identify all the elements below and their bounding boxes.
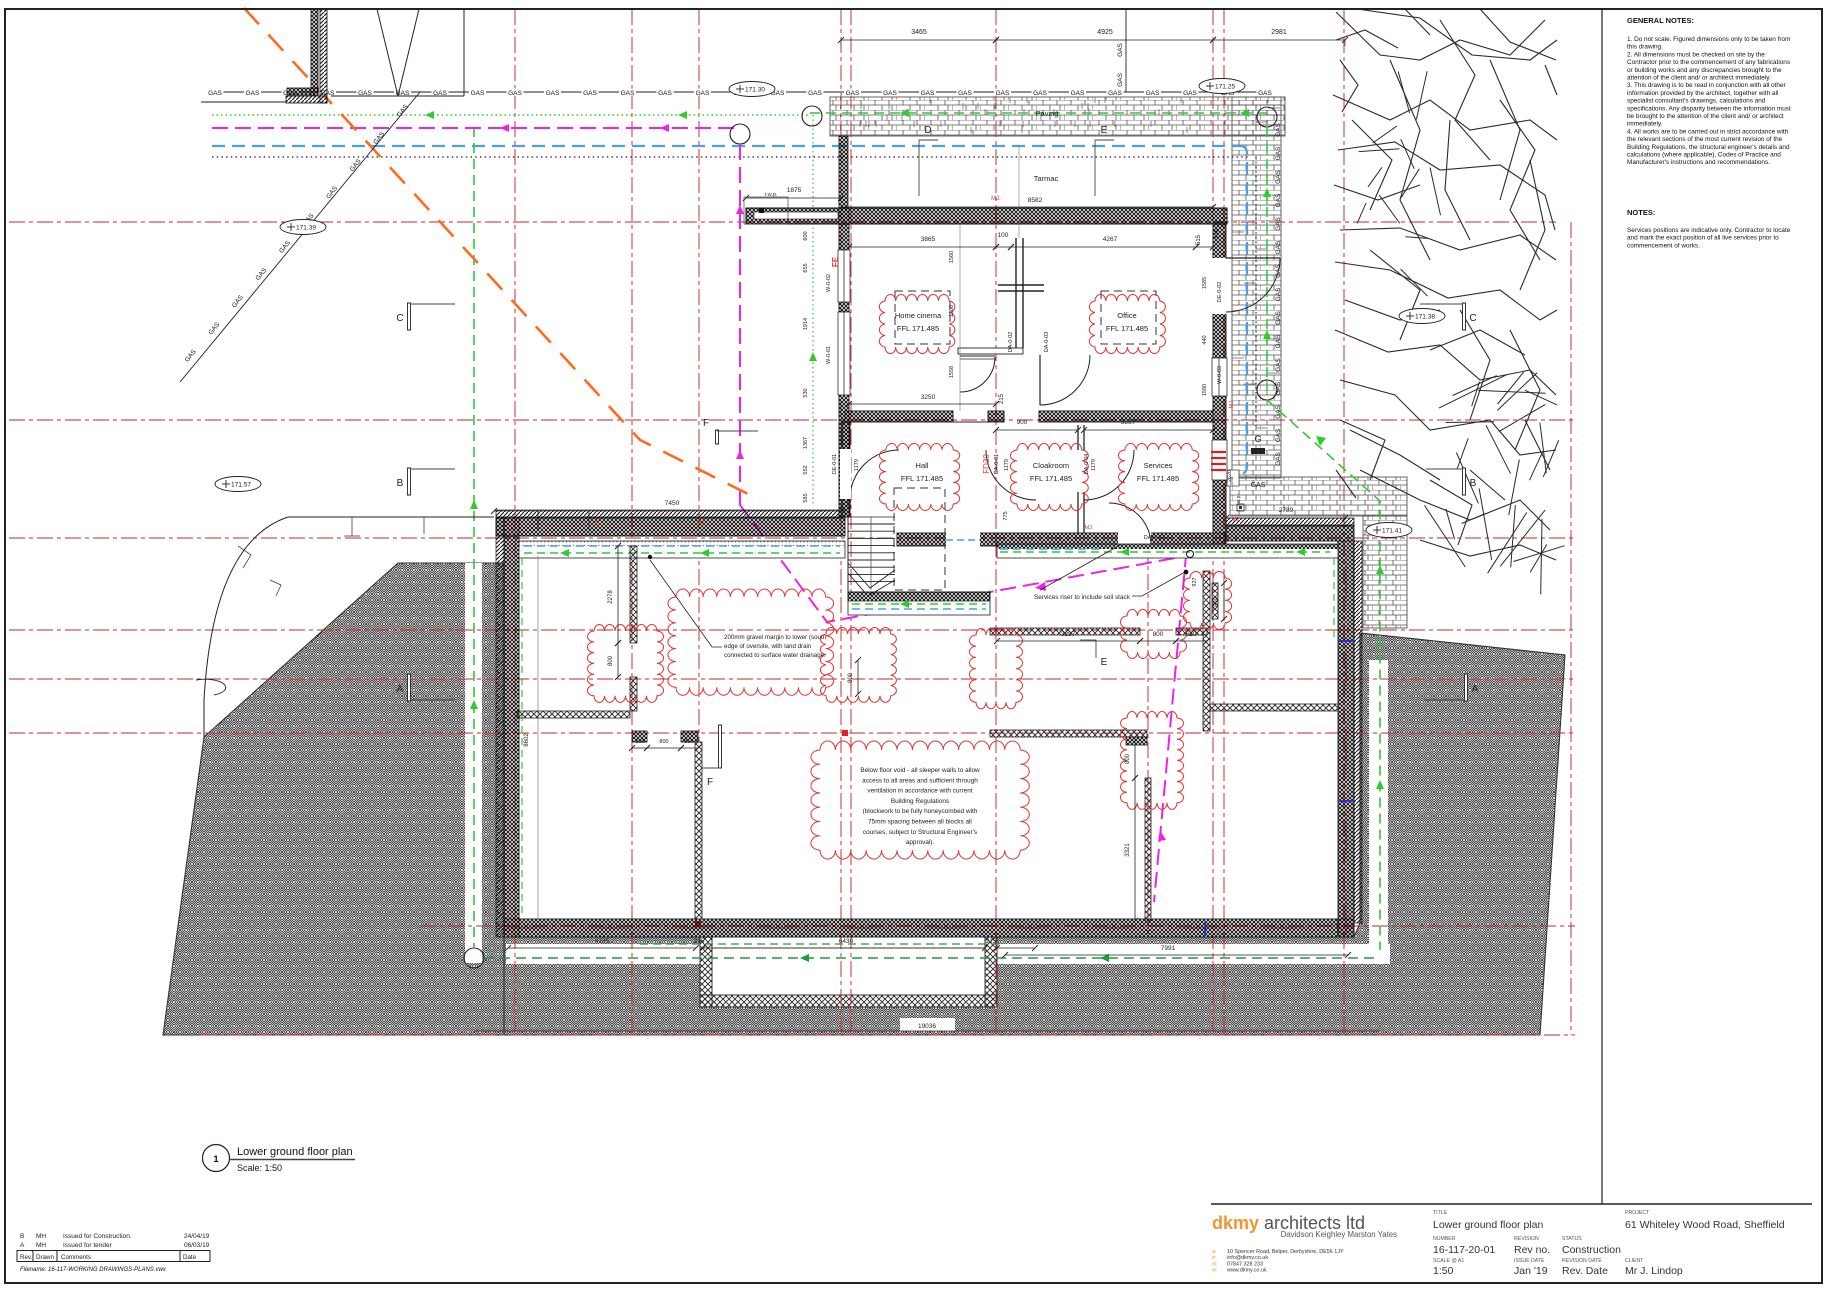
svg-text:(blockwork to be fully honeyco: (blockwork to be fully honeycombed with [863,808,978,815]
svg-text:FFL 171.485: FFL 171.485 [901,474,943,483]
svg-text:TITLE: TITLE [1433,1210,1448,1216]
svg-text:GAS: GAS [1108,90,1122,97]
svg-text:Lower ground floor plan: Lower ground floor plan [1433,1219,1543,1231]
svg-text:info@dkmy.co.uk: info@dkmy.co.uk [1227,1255,1268,1261]
svg-text:171.41: 171.41 [1382,528,1402,535]
svg-text:16-117-WORKING DRAWINGS-PLANS.: 16-117-WORKING DRAWINGS-PLANS.vwx [48,1267,167,1273]
svg-text:Filename:: Filename: [20,1267,47,1273]
svg-text:1179: 1179 [1091,459,1097,471]
svg-text:171.57: 171.57 [231,482,251,489]
svg-text:Building Regulations, the stru: Building Regulations, the structural eng… [1627,144,1790,151]
svg-text:215: 215 [986,938,997,945]
svg-text:1585: 1585 [1202,277,1208,289]
svg-text:Rev. Date: Rev. Date [1562,1265,1608,1277]
svg-text:C: C [1469,313,1476,324]
svg-text:1580: 1580 [1202,384,1208,396]
svg-text:2789: 2789 [1279,507,1294,514]
svg-text:1: 1 [213,1154,219,1165]
svg-text:8602: 8602 [524,733,530,747]
svg-text:MJ.: MJ. [1085,525,1094,531]
svg-text:GAS: GAS [1275,122,1282,136]
svg-text:4267: 4267 [1103,236,1118,243]
svg-text:215: 215 [999,393,1005,404]
svg-text:Construction: Construction [1562,1244,1621,1256]
svg-text:Rev no.: Rev no. [1514,1244,1550,1256]
svg-text:515: 515 [1196,234,1202,245]
svg-text:1179: 1179 [854,459,860,471]
svg-text:W-0-02: W-0-02 [826,274,832,292]
svg-text:Contractor prior to the commen: Contractor prior to the commencement of … [1627,59,1790,66]
svg-text:Below floor void - all sleeper: Below floor void - all sleeper walls to … [860,767,980,774]
svg-text:STATUS: STATUS [1562,1236,1582,1242]
svg-text:MJ.: MJ. [1229,399,1235,408]
svg-text:FFL 171.485: FFL 171.485 [1030,474,1072,483]
svg-text:a:: a: [1212,1249,1217,1255]
svg-text:75mm spacing between all block: 75mm spacing between all blocks all [868,819,972,826]
svg-text:1200: 1200 [949,305,955,317]
svg-text:immediately.: immediately. [1627,121,1663,128]
svg-text:16-117-20-01: 16-117-20-01 [1433,1244,1495,1256]
svg-text:GAS: GAS [1146,90,1160,97]
svg-text:350: 350 [635,739,644,745]
svg-text:620: 620 [1186,631,1197,638]
svg-text:Drawn: Drawn [36,1254,54,1261]
svg-text:Services positions are indicat: Services positions are indicative only. … [1627,227,1791,234]
svg-text:MJ.: MJ. [991,196,1001,202]
svg-text:GAS: GAS [1275,169,1282,183]
svg-text:GAS: GAS [958,90,972,97]
svg-text:07847 328 233: 07847 328 233 [1227,1261,1263,1267]
svg-text:61 Whiteley Wood Road, Sheffie: 61 Whiteley Wood Road, Sheffield [1625,1219,1785,1231]
svg-text:Scale: 1:50: Scale: 1:50 [237,1163,282,1173]
svg-text:ventilation in accordance with: ventilation in accordance with current [867,788,972,795]
svg-text:Hall: Hall [916,461,929,470]
svg-text:Home cinema: Home cinema [895,311,942,320]
svg-text:GAS: GAS [658,90,672,97]
svg-text:GAS: GAS [621,90,635,97]
svg-text:GAS: GAS [1258,90,1272,97]
svg-text:GAS: GAS [996,90,1010,97]
svg-text:Lower ground floor plan: Lower ground floor plan [237,1146,353,1158]
svg-text:10 Spencer Road, Belper, Derby: 10 Spencer Road, Belper, Derbyshire, DE5… [1227,1249,1344,1255]
svg-text:courses, subject to Structural: courses, subject to Structural Engineer'… [863,829,977,836]
svg-text:Comments: Comments [61,1254,91,1261]
svg-text:F: F [703,418,709,429]
svg-text:19036: 19036 [918,1023,936,1030]
svg-text:DA-0-01: DA-0-01 [994,454,1000,474]
svg-text:this drawing.: this drawing. [1627,44,1663,51]
svg-text:171.38: 171.38 [1415,314,1435,321]
svg-text:GAS: GAS [1275,146,1282,160]
svg-text:www.dkmy.co.uk: www.dkmy.co.uk [1226,1268,1267,1274]
svg-text:2. All dimensions must be chec: 2. All dimensions must be checked on sit… [1627,51,1765,58]
svg-text:F: F [707,777,713,788]
svg-text:2278: 2278 [608,590,614,604]
svg-text:Davidson Keighley Marston Yate: Davidson Keighley Marston Yates [1281,1230,1397,1239]
svg-text:B: B [1470,478,1477,489]
svg-text:C: C [396,313,403,324]
svg-text:G: G [1254,434,1261,444]
svg-text:edge of oversite, with land dr: edge of oversite, with land drain [724,643,812,650]
svg-text:1367: 1367 [803,437,809,449]
svg-text:GAS: GAS [1275,357,1282,371]
svg-text:A: A [397,684,404,695]
svg-text:GAS: GAS [1275,240,1282,254]
svg-text:Office: Office [1117,311,1136,320]
svg-text:Jan '19: Jan '19 [1514,1265,1548,1277]
svg-text:specifications. Any disparity: specifications. Any disparity between th… [1627,105,1791,112]
svg-text:8582: 8582 [1028,197,1043,204]
svg-text:D: D [924,125,931,136]
svg-text:3465: 3465 [911,29,927,36]
svg-text:800: 800 [848,672,854,683]
svg-text:e:: e: [1212,1255,1217,1261]
svg-text:1. Do not scale. Figured dimen: 1. Do not scale. Figured dimensions only… [1627,36,1790,43]
svg-text:171.30: 171.30 [745,87,765,94]
svg-text:Rev.: Rev. [20,1254,33,1261]
svg-text:r.w.p.: r.w.p. [765,192,778,198]
svg-text:800: 800 [1153,631,1164,638]
svg-text:B: B [397,478,404,489]
svg-text:calculations (where applicable: calculations (where applicable), Codes o… [1627,152,1781,159]
svg-text:GAS: GAS [246,90,260,97]
svg-text:or building works and any disc: or building works and any discrepancies … [1627,67,1782,74]
svg-text:GAS: GAS [1275,451,1282,465]
svg-text:3. This drawing is to be read: 3. This drawing is to be read in conjunc… [1627,82,1787,89]
svg-text:DA-0-03: DA-0-03 [1144,535,1164,541]
svg-text:3250: 3250 [921,394,936,401]
svg-text:GAS: GAS [583,90,597,97]
svg-text:GAS: GAS [508,90,522,97]
svg-text:DE-0-01: DE-0-01 [832,454,838,474]
svg-text:SCALE @ A1: SCALE @ A1 [1433,1258,1464,1264]
svg-text:W-0-03: W-0-03 [1217,366,1223,384]
svg-text:585: 585 [803,493,809,502]
svg-text:REVISION: REVISION [1514,1236,1539,1242]
svg-text:E: E [1101,125,1108,136]
svg-text:m:: m: [1212,1261,1218,1267]
svg-text:1:50: 1:50 [1433,1265,1454,1277]
svg-text:Services riser to include soil: Services riser to include soil stack [1034,594,1131,601]
svg-text:GAS: GAS [921,90,935,97]
svg-text:connected to surface water dra: connected to surface water drainage. [724,652,826,659]
svg-text:MH: MH [36,1233,46,1240]
svg-text:3865: 3865 [921,236,936,243]
svg-text:775: 775 [1003,511,1009,520]
svg-text:FFL 171.485: FFL 171.485 [1106,324,1148,333]
svg-text:Issued for Construction.: Issued for Construction. [63,1233,132,1240]
svg-text:approval).: approval). [906,839,935,846]
svg-text:1875: 1875 [787,187,802,194]
svg-text:7991: 7991 [1161,945,1176,952]
svg-text:CLIENT: CLIENT [1625,1258,1644,1264]
svg-text:MJ.: MJ. [1232,517,1241,523]
svg-text:B: B [20,1233,24,1240]
svg-text:DE-0-02: DE-0-02 [1217,282,1223,302]
svg-text:be brought to the attention of: be brought to the attention of the clien… [1627,113,1784,120]
svg-text:A: A [1472,684,1479,695]
svg-text:1914: 1914 [803,318,809,330]
svg-text:3321: 3321 [1125,843,1131,857]
svg-text:Cloakroom: Cloakroom [1033,461,1069,470]
svg-text:200mm gravel margin to lower (: 200mm gravel margin to lower (south [724,634,827,641]
svg-text:W-0-01: W-0-01 [826,346,832,364]
svg-text:171.39: 171.39 [296,225,316,232]
svg-text:MJ.: MJ. [697,520,706,526]
svg-text:GAS: GAS [1251,482,1266,489]
svg-text:DA-0-04: DA-0-04 [1084,454,1090,474]
svg-text:1558: 1558 [949,366,955,378]
svg-text:MJ.: MJ. [595,520,604,526]
svg-text:PROJECT: PROJECT [1625,1210,1650,1216]
svg-text:7450: 7450 [665,500,680,507]
svg-text:GAS: GAS [471,90,485,97]
svg-text:900: 900 [1017,419,1028,426]
svg-text:FD30: FD30 [982,454,991,474]
svg-text:990: 990 [847,500,853,509]
svg-text:1560: 1560 [949,251,955,263]
svg-text:GAS: GAS [546,90,560,97]
svg-text:3867: 3867 [1121,419,1136,426]
svg-text:552: 552 [803,465,809,474]
svg-text:A: A [20,1242,25,1249]
svg-text:GAS: GAS [1183,90,1197,97]
svg-text:GAS: GAS [1117,72,1124,86]
svg-text:4. All works are to be carried: 4. All works are to be carried out in st… [1627,128,1789,135]
svg-text:FFL 171.485: FFL 171.485 [897,324,939,333]
svg-text:commencement of works.: commencement of works. [1627,242,1700,249]
svg-text:GAS: GAS [846,90,860,97]
svg-text:2620: 2620 [1227,470,1233,482]
svg-text:Mr J. Lindop: Mr J. Lindop [1625,1265,1683,1277]
svg-text:GENERAL NOTES:: GENERAL NOTES: [1627,16,1694,25]
svg-text:GAS: GAS [696,90,710,97]
svg-text:MH: MH [36,1242,46,1249]
svg-text:DA-0-03: DA-0-03 [1044,332,1050,352]
svg-text:515: 515 [1214,229,1220,238]
svg-text:3297: 3297 [1061,631,1076,638]
svg-text:Issued for tender: Issued for tender [63,1242,113,1249]
svg-text:800: 800 [659,739,668,745]
svg-text:access to all areas and suffic: access to all areas and sufficient throu… [862,777,978,784]
svg-text:DA-0-02: DA-0-02 [1008,332,1014,352]
svg-text:06/03/19: 06/03/19 [184,1242,210,1249]
svg-text:the relevant sections of the m: the relevant sections of the most curren… [1627,136,1783,143]
svg-text:600: 600 [803,231,809,240]
svg-text:GAS: GAS [1071,90,1085,97]
svg-text:GAS: GAS [1275,428,1282,442]
svg-text:440: 440 [1202,335,1208,344]
svg-text:FE: FE [831,256,840,267]
svg-text:GAS: GAS [1275,216,1282,230]
svg-text:Services: Services [1144,461,1173,470]
svg-text:REVISION DATE: REVISION DATE [1562,1258,1602,1264]
svg-text:655: 655 [803,263,809,272]
svg-text:530: 530 [803,388,809,397]
svg-text:GAS: GAS [883,90,897,97]
svg-text:GAS: GAS [1275,404,1282,418]
svg-text:information provided by the ar: information provided by the architect, t… [1627,90,1778,97]
svg-text:GAS: GAS [1117,42,1124,56]
svg-text:E: E [1101,657,1108,668]
svg-text:927: 927 [1192,577,1198,586]
svg-text:Building Regulations: Building Regulations [891,798,949,805]
svg-text:GAS: GAS [1275,381,1282,395]
svg-text:ISSUE DATE: ISSUE DATE [1514,1258,1545,1264]
svg-text:Tarmac: Tarmac [1034,174,1059,183]
svg-text:GAS: GAS [1033,90,1047,97]
svg-text:800: 800 [1125,753,1131,764]
svg-text:NOTES:: NOTES: [1627,208,1655,217]
svg-text:Date: Date [183,1254,197,1261]
svg-text:4925: 4925 [1097,29,1113,36]
svg-text:attention of the client and/ o: attention of the client and/ or architec… [1627,75,1771,82]
svg-text:800: 800 [1214,596,1220,607]
svg-text:350: 350 [684,739,693,745]
svg-text:800: 800 [608,655,614,666]
svg-text:GAS: GAS [208,90,222,97]
svg-text:GAS: GAS [1275,193,1282,207]
svg-text:171.25: 171.25 [1215,84,1235,91]
svg-text:GAS: GAS [1275,334,1282,348]
svg-text:24/04/19: 24/04/19 [184,1233,210,1240]
svg-text:1179: 1179 [1004,459,1010,471]
svg-text:FFL 171.485: FFL 171.485 [1137,474,1179,483]
svg-text:specialist consultant's drawin: specialist consultant's drawings, calcul… [1627,98,1766,105]
svg-text:NUMBER: NUMBER [1433,1236,1456,1242]
svg-text:GAS: GAS [1275,310,1282,324]
svg-text:2981: 2981 [1271,29,1287,36]
svg-text:6430: 6430 [839,938,854,945]
svg-text:and mark the exact position of: and mark the exact position of all live … [1627,235,1779,242]
svg-text:Manufacturer's instructions an: Manufacturer's instructions and recommen… [1627,159,1770,166]
svg-text:215: 215 [694,938,705,945]
svg-text:GAS: GAS [808,90,822,97]
svg-text:GAS: GAS [1275,287,1282,301]
svg-text:w:: w: [1211,1268,1217,1274]
svg-text:Paving: Paving [1036,109,1059,118]
svg-text:100: 100 [998,232,1009,239]
svg-text:4185: 4185 [595,938,610,945]
